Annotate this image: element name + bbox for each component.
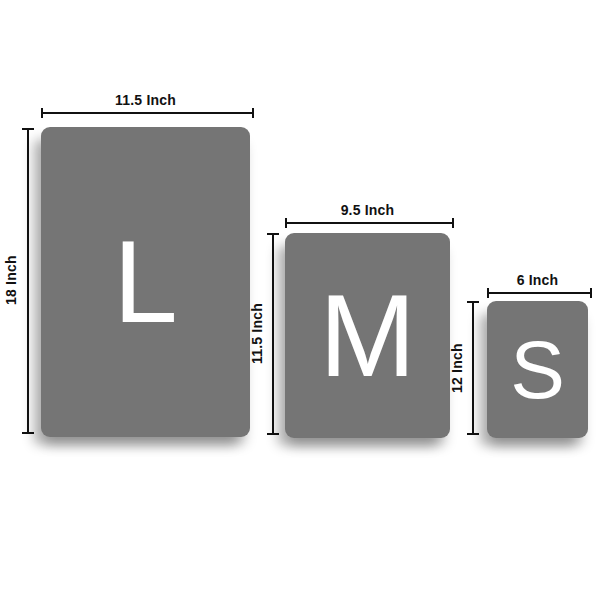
height-dimension-line-small	[467, 301, 479, 435]
size-panel-large: L	[41, 127, 250, 437]
width-dimension-line-small	[487, 288, 592, 298]
width-label-small: 6 Inch	[487, 272, 588, 288]
size-chart-diagram: 11.5 Inch 18 Inch L 9.5 Inch 11.5 Inch M…	[0, 0, 600, 600]
width-dimension-line-large	[41, 108, 254, 118]
size-letter-medium: M	[319, 278, 416, 394]
size-letter-small: S	[510, 329, 565, 411]
size-panel-small: S	[487, 301, 588, 438]
width-label-medium: 9.5 Inch	[285, 202, 450, 218]
height-dimension-line-medium	[267, 233, 279, 435]
width-label-large: 11.5 Inch	[41, 92, 250, 108]
width-dimension-line-medium	[285, 218, 454, 228]
size-letter-large: L	[113, 224, 178, 340]
height-label-large: 18 Inch	[2, 127, 20, 433]
height-dimension-line-large	[22, 128, 34, 434]
height-label-small: 12 Inch	[448, 301, 466, 435]
height-label-medium: 11.5 Inch	[248, 233, 266, 435]
size-panel-medium: M	[285, 233, 450, 438]
